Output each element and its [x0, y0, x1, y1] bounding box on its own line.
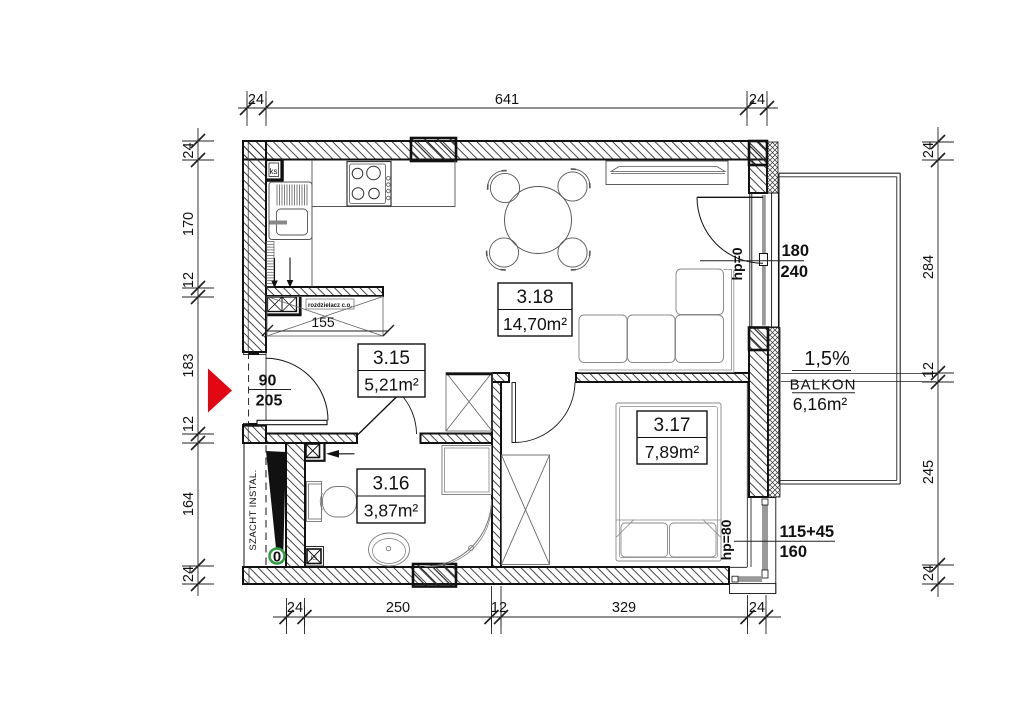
- svg-text:12: 12: [921, 362, 937, 378]
- svg-text:183: 183: [181, 353, 197, 377]
- svg-text:155: 155: [311, 314, 335, 330]
- svg-text:3.18: 3.18: [517, 287, 554, 308]
- svg-text:240: 240: [781, 263, 809, 281]
- svg-text:24: 24: [921, 565, 937, 581]
- svg-text:24: 24: [181, 566, 197, 582]
- svg-text:3.16: 3.16: [373, 474, 410, 495]
- svg-text:0: 0: [273, 549, 281, 566]
- svg-text:90: 90: [259, 373, 277, 390]
- svg-text:rozdzielacz c.o.: rozdzielacz c.o.: [308, 303, 352, 309]
- svg-text:329: 329: [612, 600, 636, 616]
- svg-text:1,5%: 1,5%: [804, 348, 850, 370]
- svg-text:hp=0: hp=0: [729, 247, 745, 280]
- svg-text:284: 284: [921, 255, 937, 279]
- svg-text:180: 180: [782, 242, 810, 260]
- svg-text:115+45: 115+45: [780, 523, 835, 541]
- svg-text:7,89m²: 7,89m²: [645, 442, 700, 462]
- svg-text:5,21m²: 5,21m²: [364, 375, 419, 395]
- svg-text:SZACHT INSTAL.: SZACHT INSTAL.: [248, 469, 259, 550]
- svg-text:641: 641: [495, 92, 519, 108]
- svg-text:ks: ks: [270, 167, 278, 176]
- svg-text:6,16m²: 6,16m²: [793, 394, 848, 414]
- svg-text:24: 24: [749, 92, 765, 108]
- svg-text:BALKON: BALKON: [790, 377, 857, 394]
- svg-text:170: 170: [181, 212, 197, 236]
- svg-text:3.15: 3.15: [373, 348, 410, 369]
- svg-text:250: 250: [386, 600, 410, 616]
- svg-text:24: 24: [248, 92, 264, 108]
- svg-text:3.17: 3.17: [654, 415, 691, 436]
- svg-text:ks: ks: [311, 555, 318, 562]
- svg-text:24: 24: [287, 600, 303, 616]
- svg-text:12: 12: [181, 272, 197, 288]
- svg-text:3,87m²: 3,87m²: [364, 501, 419, 521]
- svg-text:24: 24: [921, 142, 937, 158]
- svg-text:160: 160: [780, 543, 808, 561]
- svg-text:245: 245: [921, 460, 937, 484]
- svg-text:24: 24: [181, 142, 197, 158]
- svg-text:205: 205: [256, 393, 283, 410]
- svg-text:14,70m²: 14,70m²: [503, 314, 567, 334]
- svg-text:12: 12: [491, 600, 507, 616]
- svg-text:12: 12: [181, 416, 197, 432]
- svg-text:hp=80: hp=80: [718, 519, 734, 560]
- svg-text:164: 164: [181, 492, 197, 516]
- svg-text:24: 24: [749, 600, 765, 616]
